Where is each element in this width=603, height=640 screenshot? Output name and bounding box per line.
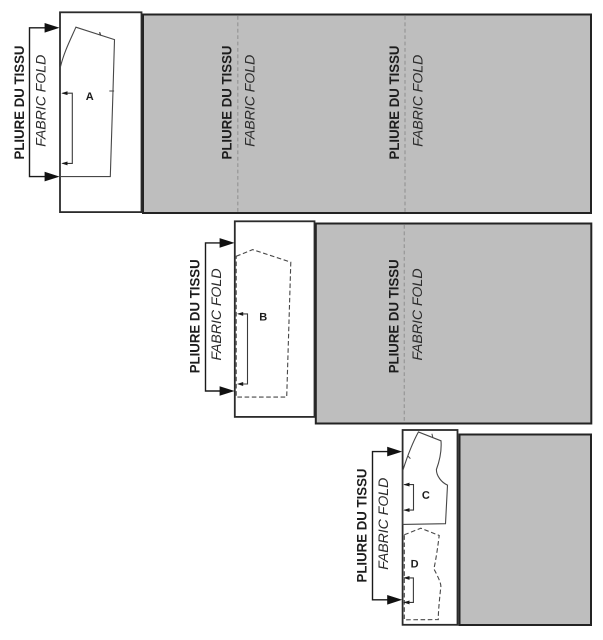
svg-text:C: C xyxy=(422,490,430,502)
svg-text:PLIURE DU TISSU: PLIURE DU TISSU xyxy=(218,45,234,159)
svg-text:B: B xyxy=(259,311,267,323)
svg-text:FABRIC FOLD: FABRIC FOLD xyxy=(411,54,426,146)
svg-text:PLIURE DU TISSU: PLIURE DU TISSU xyxy=(386,46,402,160)
svg-text:FABRIC FOLD: FABRIC FOLD xyxy=(410,268,425,360)
svg-text:PLIURE DU TISSU: PLIURE DU TISSU xyxy=(187,259,203,373)
svg-text:FABRIC FOLD: FABRIC FOLD xyxy=(376,477,391,569)
svg-text:PLIURE DU TISSU: PLIURE DU TISSU xyxy=(11,46,27,160)
svg-text:FABRIC FOLD: FABRIC FOLD xyxy=(243,54,258,146)
svg-text:FABRIC FOLD: FABRIC FOLD xyxy=(209,268,224,360)
svg-text:FABRIC FOLD: FABRIC FOLD xyxy=(34,54,49,146)
svg-text:A: A xyxy=(86,91,94,103)
svg-text:PLIURE DU TISSU: PLIURE DU TISSU xyxy=(354,469,370,583)
svg-text:PLIURE DU TISSU: PLIURE DU TISSU xyxy=(385,259,401,373)
svg-text:D: D xyxy=(411,558,419,570)
